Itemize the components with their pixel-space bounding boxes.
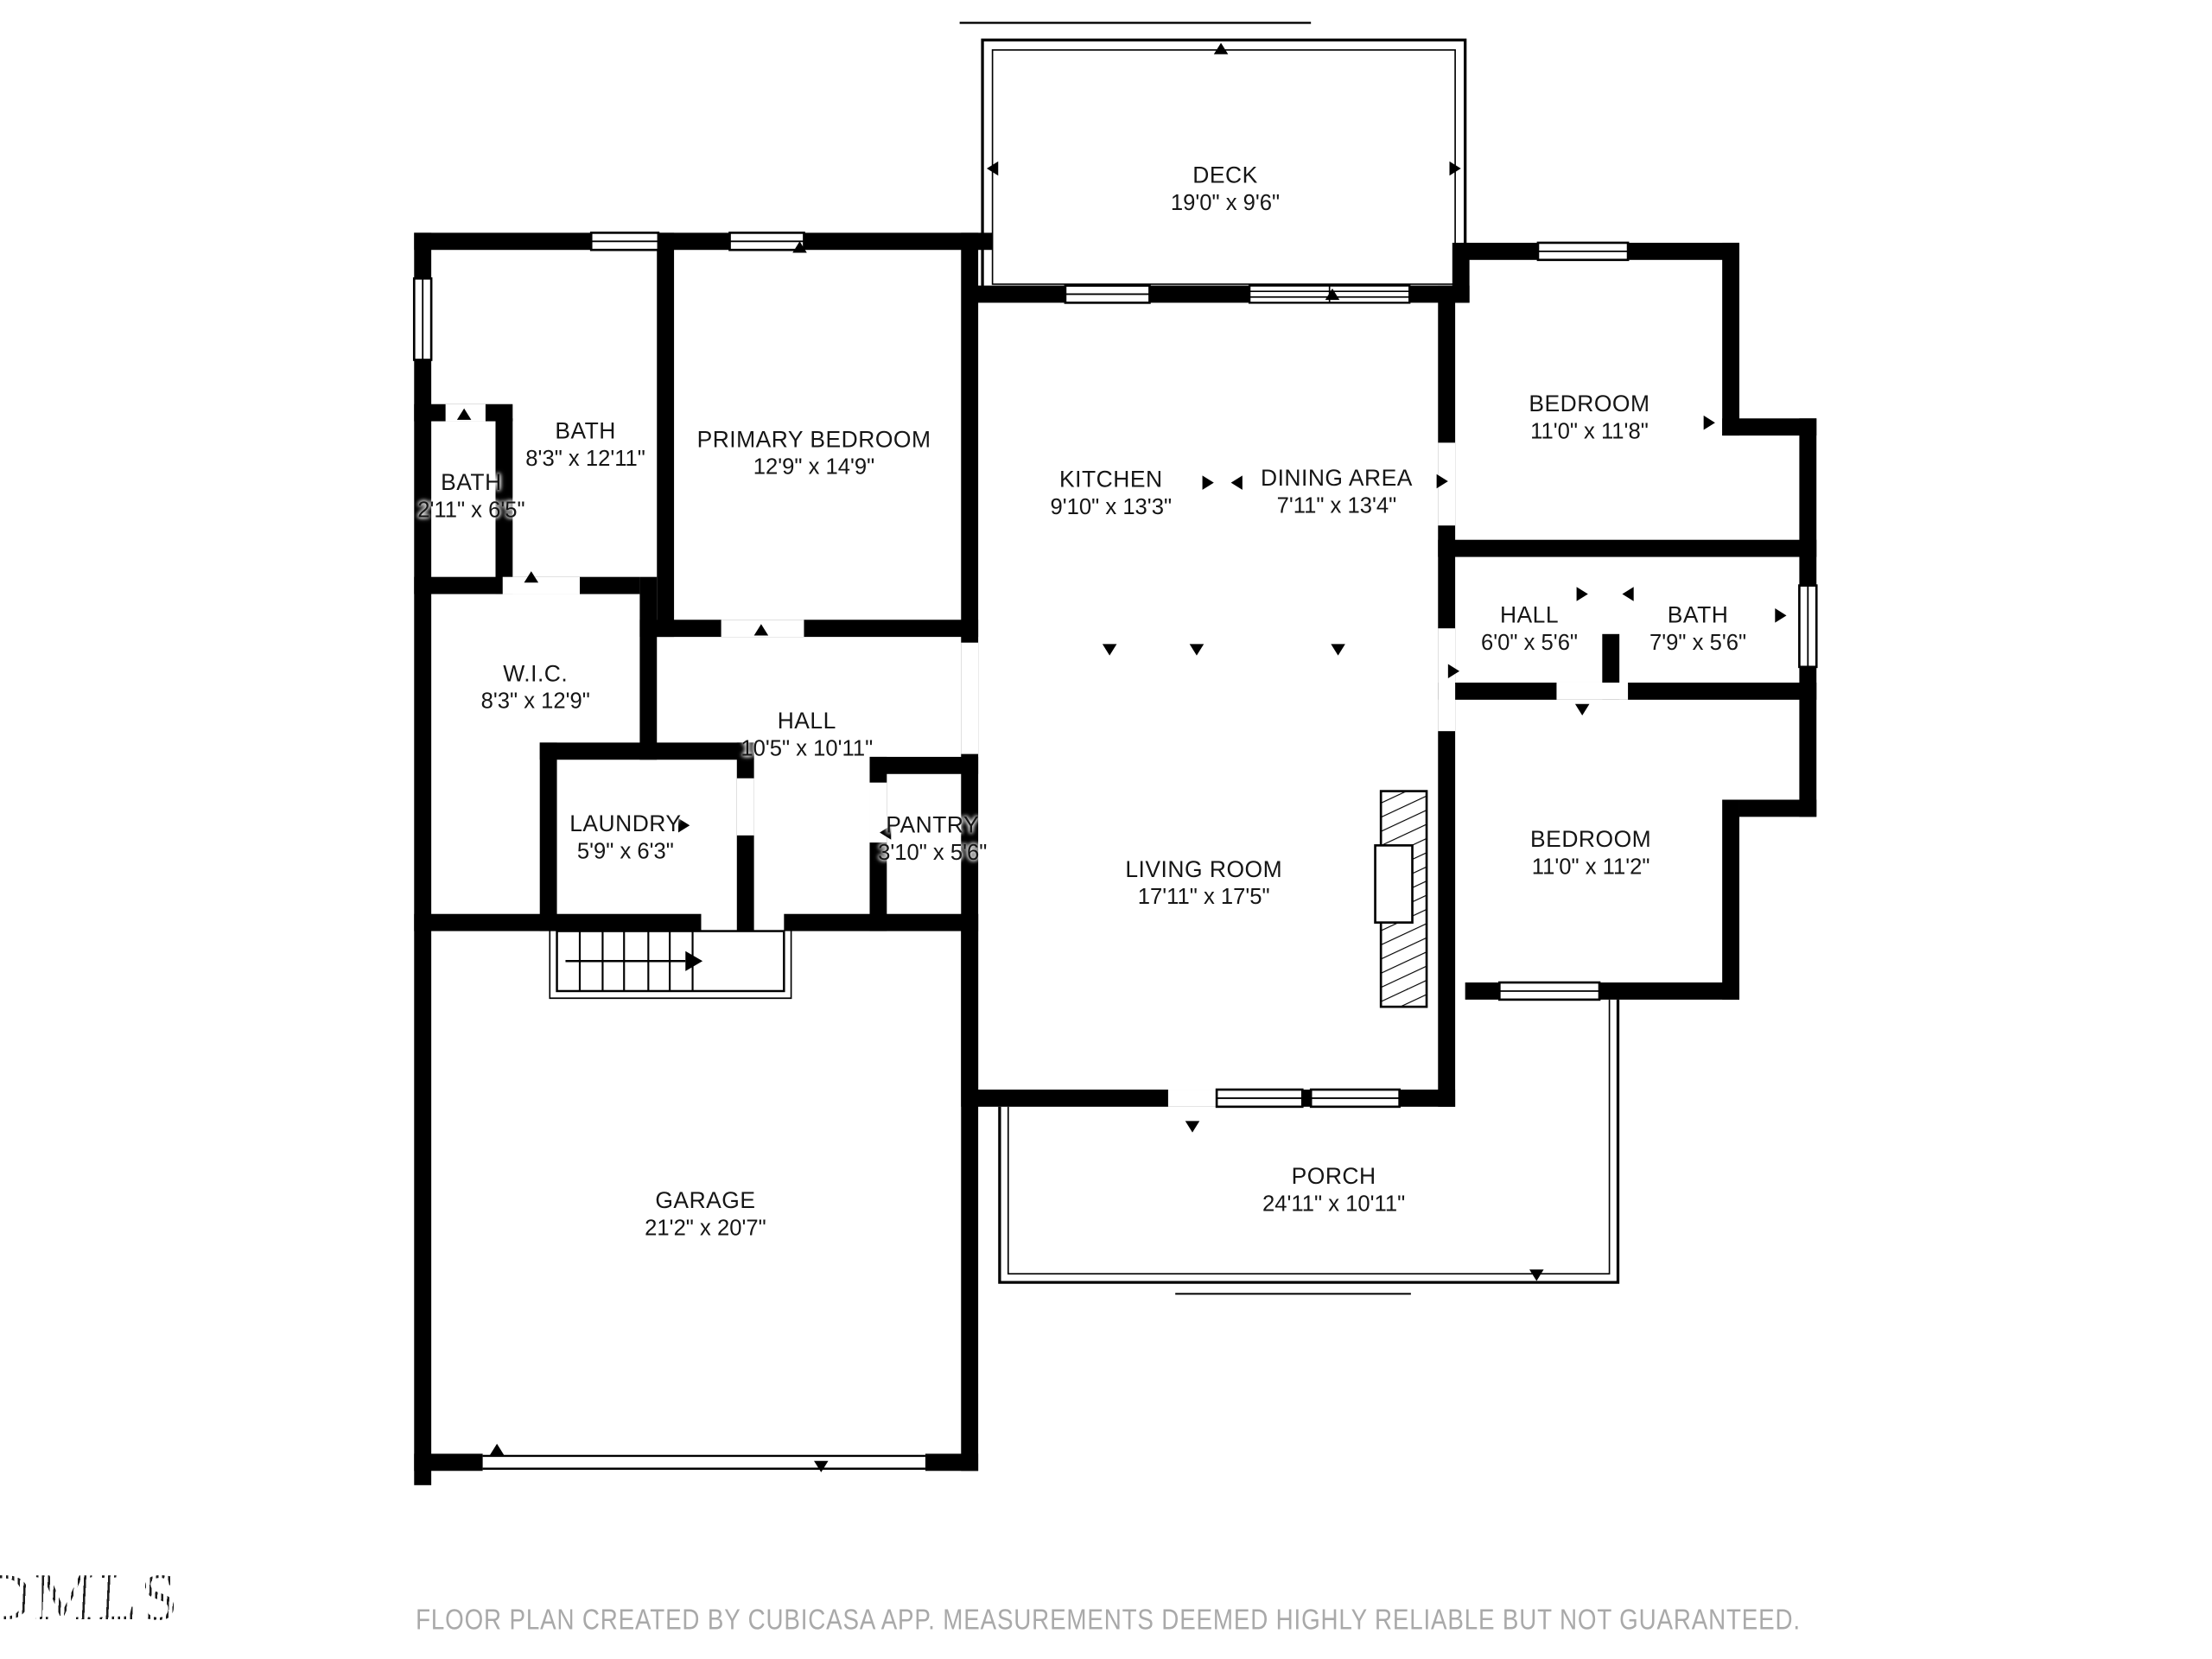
room-label-bedroom-right: BEDROOM 11'0" x 11'2" <box>1530 827 1651 881</box>
room-name: BEDROOM <box>1529 391 1649 418</box>
logo-text: DMLS <box>0 1560 181 1635</box>
room-label-wic: W.I.C. 8'3" x 12'9" <box>481 661 590 715</box>
room-label-garage: GARAGE 21'2" x 20'7" <box>645 1188 766 1243</box>
room-name: BATH <box>525 418 645 445</box>
room-label-living-room: LIVING ROOM 17'11" x 17'5" <box>1125 857 1282 912</box>
room-name: HALL <box>1481 602 1578 629</box>
room-label-porch: PORCH 24'11" x 10'11" <box>1262 1164 1405 1218</box>
room-label-dining-area: DINING AREA 7'11" x 13'4" <box>1261 466 1413 520</box>
room-name: PORCH <box>1262 1164 1405 1191</box>
room-label-bedroom-top: BEDROOM 11'0" x 11'8" <box>1529 391 1649 446</box>
room-name: DINING AREA <box>1261 466 1413 493</box>
room-dims: 8'3" x 12'9" <box>481 689 590 715</box>
room-name: KITCHEN <box>1051 467 1173 493</box>
mls-logo: DMLS <box>0 1560 181 1643</box>
room-name: LIVING ROOM <box>1125 857 1282 884</box>
room-label-hall-right: HALL 6'0" x 5'6" <box>1481 602 1578 657</box>
room-name: PRIMARY BEDROOM <box>697 427 931 454</box>
room-name: HALL <box>741 709 873 735</box>
room-dims: 17'11" x 17'5" <box>1125 884 1282 911</box>
room-name: BATH <box>417 470 524 497</box>
room-dims: 24'11" x 10'11" <box>1262 1191 1405 1217</box>
room-dims: 11'0" x 11'2" <box>1530 854 1651 880</box>
disclaimer-text: FLOOR PLAN CREATED BY CUBICASA APP. MEAS… <box>416 1605 1801 1638</box>
room-dims: 7'9" x 5'6" <box>1649 630 1746 657</box>
room-dims: 21'2" x 20'7" <box>645 1215 766 1242</box>
room-labels: DECK 19'0" x 9'6" BATH 8'3" x 12'11" BAT… <box>0 0 2212 1658</box>
room-dims: 12'9" x 14'9" <box>697 454 931 481</box>
room-dims: 8'3" x 12'11" <box>525 446 645 473</box>
room-label-kitchen: KITCHEN 9'10" x 13'3" <box>1051 467 1173 521</box>
room-dims: 9'10" x 13'3" <box>1051 494 1173 521</box>
room-dims: 19'0" x 9'6" <box>1171 190 1280 217</box>
room-name: W.I.C. <box>481 661 590 688</box>
room-dims: 6'0" x 5'6" <box>1481 630 1578 657</box>
room-dims: 5'9" x 6'3" <box>569 838 681 865</box>
room-dims: 10'5" x 10'11" <box>741 735 873 762</box>
room-dims: 2'11" x 6'5" <box>417 497 524 524</box>
floor-plan: DECK 19'0" x 9'6" BATH 8'3" x 12'11" BAT… <box>0 0 2212 1658</box>
room-label-bath-main: BATH 8'3" x 12'11" <box>525 418 645 473</box>
room-dims: 11'0" x 11'8" <box>1529 418 1649 445</box>
room-label-bath-small: BATH 2'11" x 6'5" <box>417 470 524 524</box>
room-name: BATH <box>1649 602 1746 629</box>
room-label-laundry: LAUNDRY 5'9" x 6'3" <box>569 811 681 866</box>
room-dims: 3'10" x 5'6" <box>878 840 987 867</box>
room-name: DECK <box>1171 162 1280 189</box>
room-label-bath-right: BATH 7'9" x 5'6" <box>1649 602 1746 657</box>
room-label-deck: DECK 19'0" x 9'6" <box>1171 162 1280 217</box>
room-dims: 7'11" x 13'4" <box>1261 493 1413 519</box>
room-name: LAUNDRY <box>569 811 681 838</box>
room-label-pantry: PANTRY 3'10" x 5'6" <box>878 812 987 867</box>
room-name: PANTRY <box>878 812 987 839</box>
room-label-primary-bedroom: PRIMARY BEDROOM 12'9" x 14'9" <box>697 427 931 481</box>
room-name: GARAGE <box>645 1188 766 1215</box>
room-name: BEDROOM <box>1530 827 1651 854</box>
room-label-hall-center: HALL 10'5" x 10'11" <box>741 709 873 763</box>
